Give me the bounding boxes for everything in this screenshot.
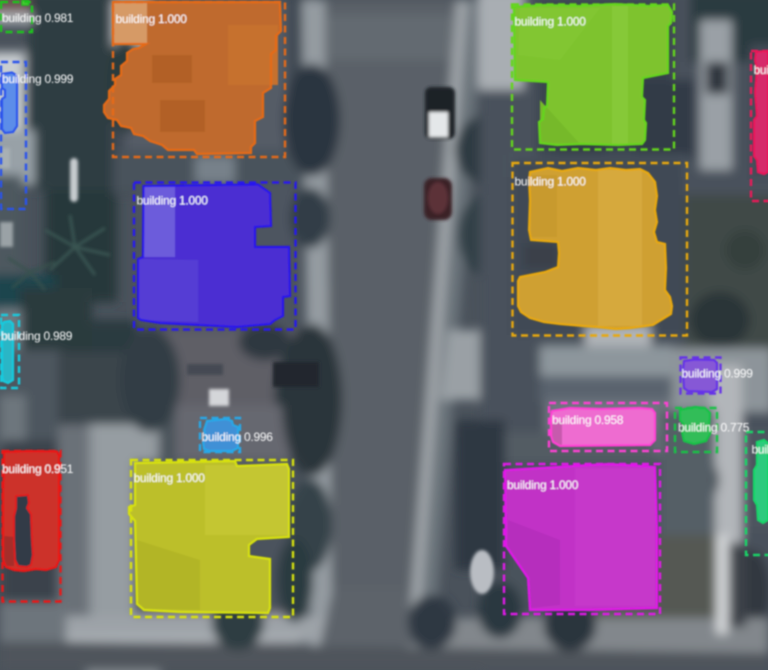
svg-text:building 1.000: building 1.000: [137, 194, 209, 208]
svg-text:building 0.981: building 0.981: [2, 11, 74, 25]
svg-text:building 0.958: building 0.958: [552, 413, 624, 427]
svg-text:building 1.000: building 1.000: [515, 15, 587, 29]
svg-text:building 1.000: building 1.000: [134, 471, 206, 485]
svg-text:building 0.998: building 0.998: [754, 63, 768, 77]
svg-text:building 0.996: building 0.996: [202, 430, 274, 444]
svg-text:building 1.000: building 1.000: [116, 12, 188, 26]
svg-text:building 1.000: building 1.000: [507, 478, 579, 492]
svg-text:building 0.775: building 0.775: [678, 421, 750, 435]
svg-text:building 0.951: building 0.951: [2, 462, 74, 476]
svg-text:building 0.999: building 0.999: [682, 367, 754, 381]
svg-text:building 1.000: building 1.000: [515, 175, 587, 189]
svg-text:building 0.97: building 0.97: [752, 443, 768, 457]
svg-text:building 0.999: building 0.999: [2, 72, 74, 86]
svg-text:building 0.989: building 0.989: [1, 329, 73, 343]
